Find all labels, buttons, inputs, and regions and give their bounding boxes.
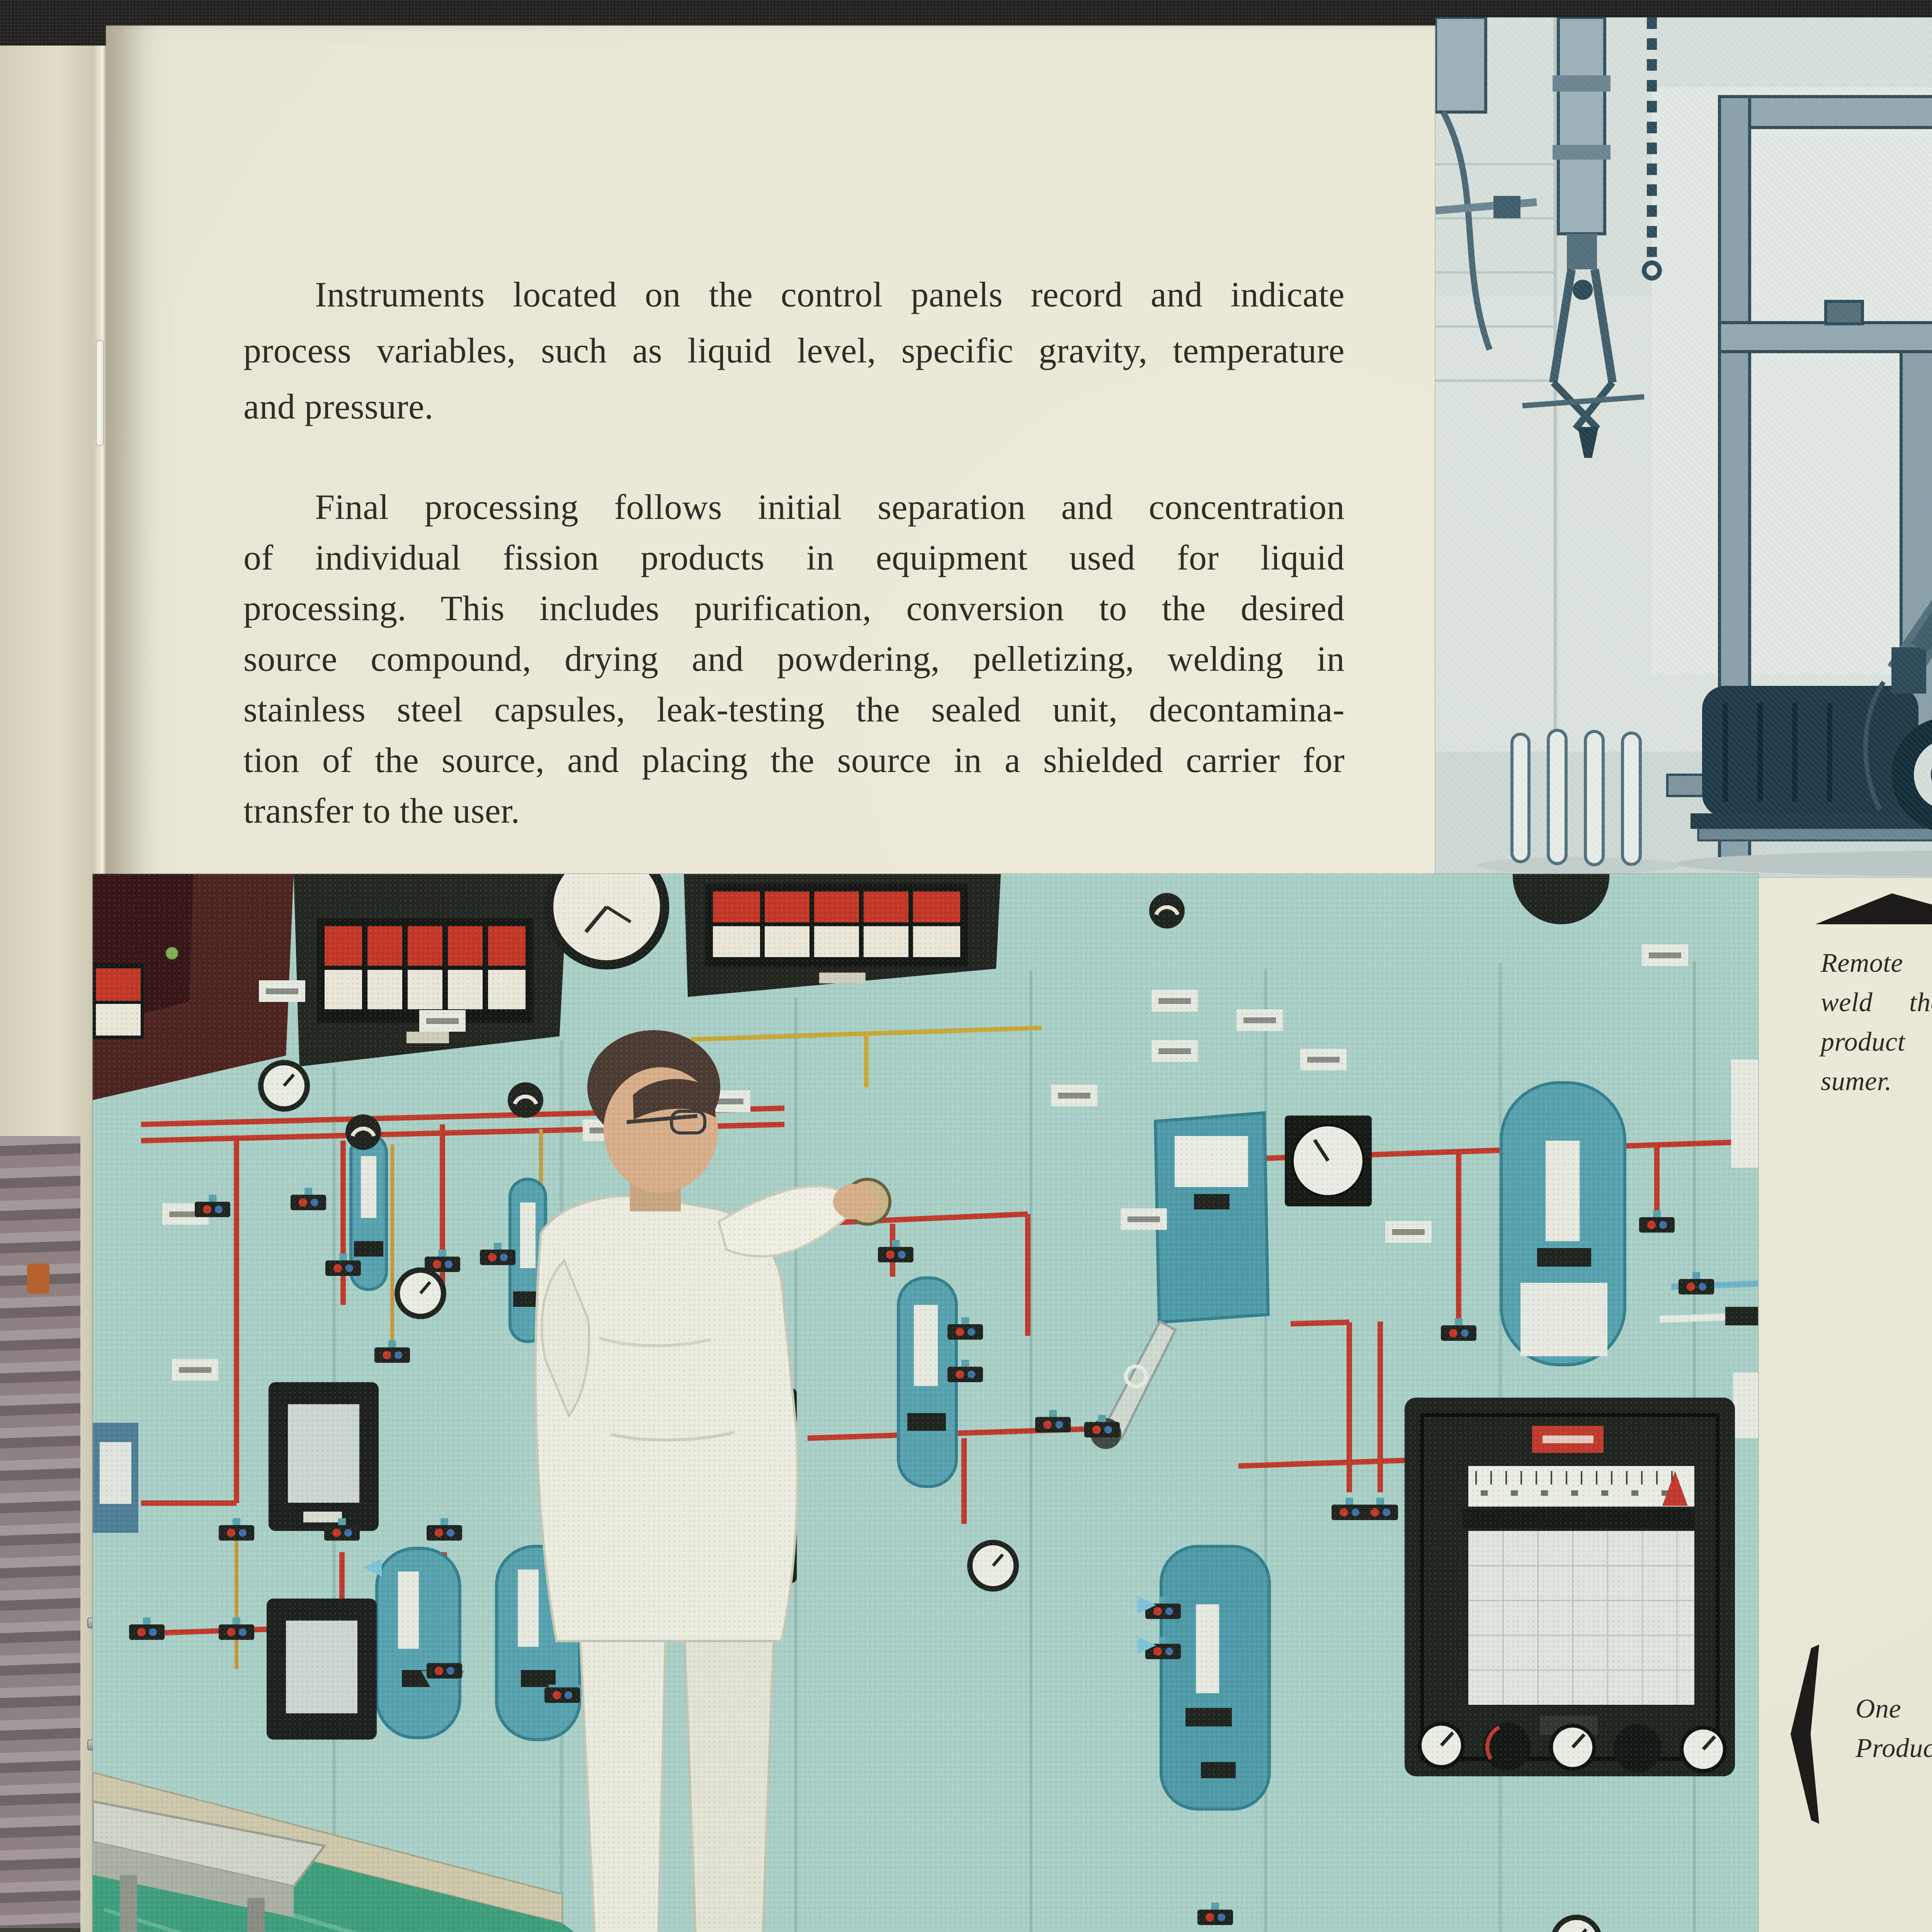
photo-fragment-rust-object bbox=[27, 1264, 49, 1294]
body-text: Instruments located on the control panel… bbox=[243, 267, 1345, 836]
paragraph-2-line: of individual fission products in equipm… bbox=[243, 532, 1345, 583]
facing-page-edge bbox=[0, 46, 106, 1932]
paragraph-2-line: stainless steel capsules, leak-testing t… bbox=[243, 684, 1345, 735]
paragraph-2-line: processing. This includes purification, … bbox=[243, 583, 1345, 634]
photo-fragment-shadow bbox=[0, 1928, 80, 1932]
paragraph-1-line: and pressure. bbox=[243, 379, 1345, 435]
hot-cell-photo bbox=[1435, 17, 1932, 877]
control-room-photo bbox=[93, 874, 1758, 1932]
binding-thread bbox=[96, 340, 104, 446]
paragraph-1: Instruments located on the control panel… bbox=[243, 267, 1345, 435]
paragraph-2: Final processing follows initial separat… bbox=[243, 482, 1345, 836]
caption-line: Remote equipment in a hot cell is utiliz… bbox=[1821, 944, 1932, 983]
facing-page-photo-fragment bbox=[0, 1136, 80, 1932]
control-board-caption: One of the control boards at the Fission… bbox=[1855, 1689, 1932, 1768]
paragraph-2-line: source compound, drying and powdering, p… bbox=[243, 634, 1345, 684]
paragraph-2-line: tion of the source, and placing the sour… bbox=[243, 735, 1345, 786]
scanned-booklet-spread: Instruments located on the control panel… bbox=[0, 0, 1932, 1932]
caption-line: product source prior to shipment to the … bbox=[1821, 1022, 1932, 1062]
paragraph-2-line: transfer to the user. bbox=[243, 786, 1345, 836]
hot-cell-caption: Remote equipment in a hot cell is utiliz… bbox=[1821, 944, 1932, 1101]
paragraph-1-line: Instruments located on the control panel… bbox=[243, 267, 1345, 323]
paragraph-2-line: Final processing follows initial separat… bbox=[243, 482, 1345, 532]
caption-line: sumer. bbox=[1821, 1062, 1932, 1101]
caption-line: One of the control boards at the Fission bbox=[1855, 1689, 1932, 1729]
caption-line: weld the stainless steel capsule of a fi… bbox=[1821, 983, 1932, 1022]
paragraph-1-line: process variables, such as liquid level,… bbox=[243, 323, 1345, 379]
caption-line: Products Development Laboratory. bbox=[1855, 1729, 1932, 1768]
